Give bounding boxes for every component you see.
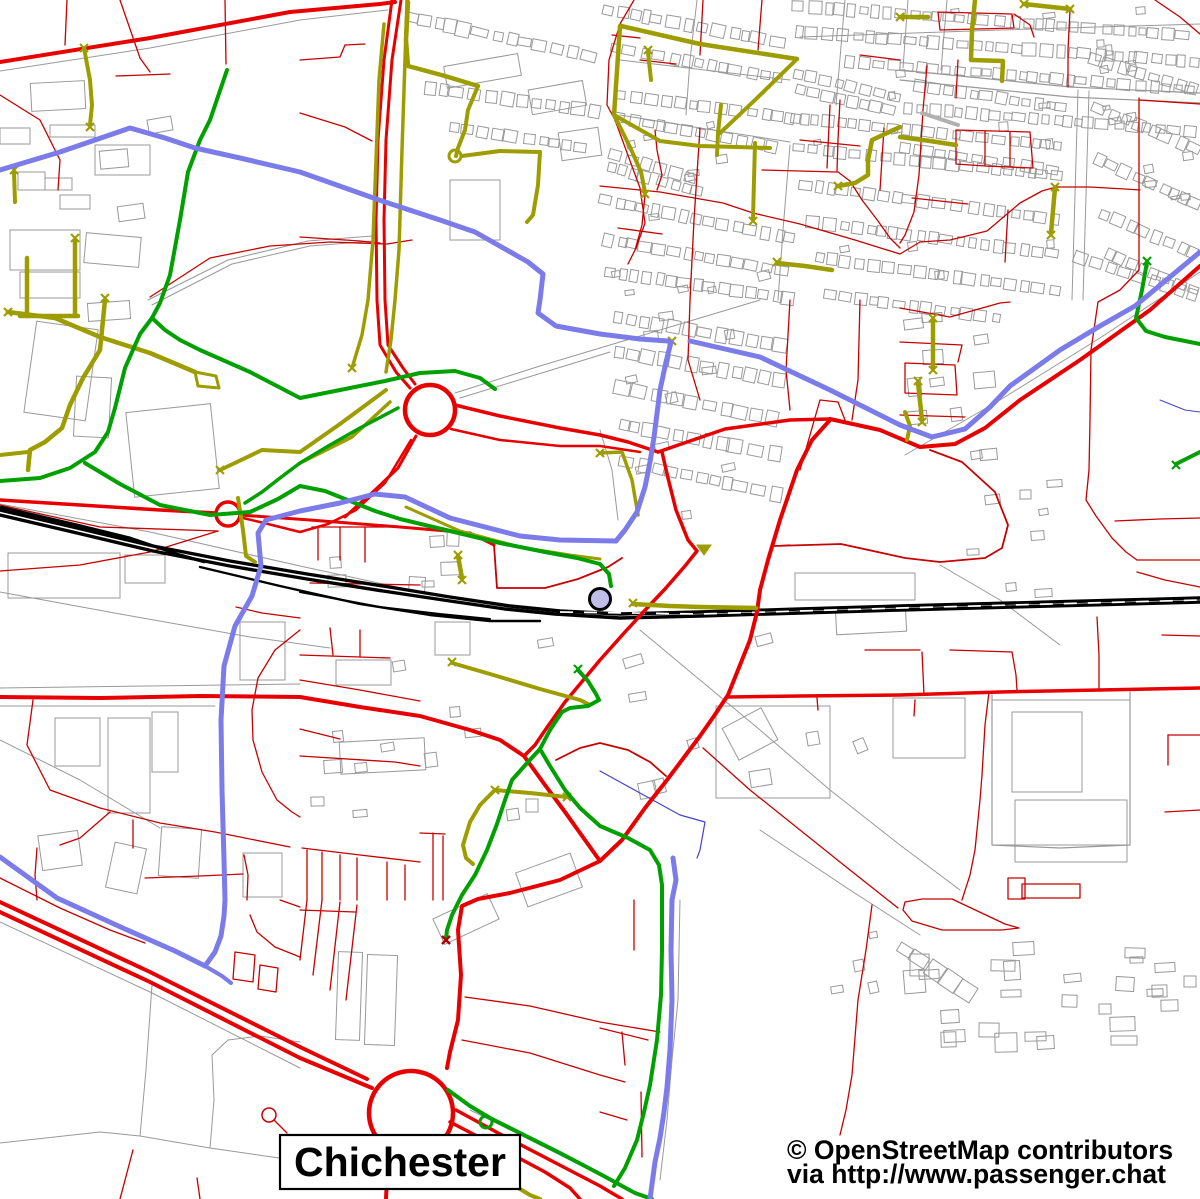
svg-text:Chichester: Chichester <box>294 1139 506 1185</box>
svg-text:via http://www.passenger.chat: via http://www.passenger.chat <box>787 1159 1166 1189</box>
